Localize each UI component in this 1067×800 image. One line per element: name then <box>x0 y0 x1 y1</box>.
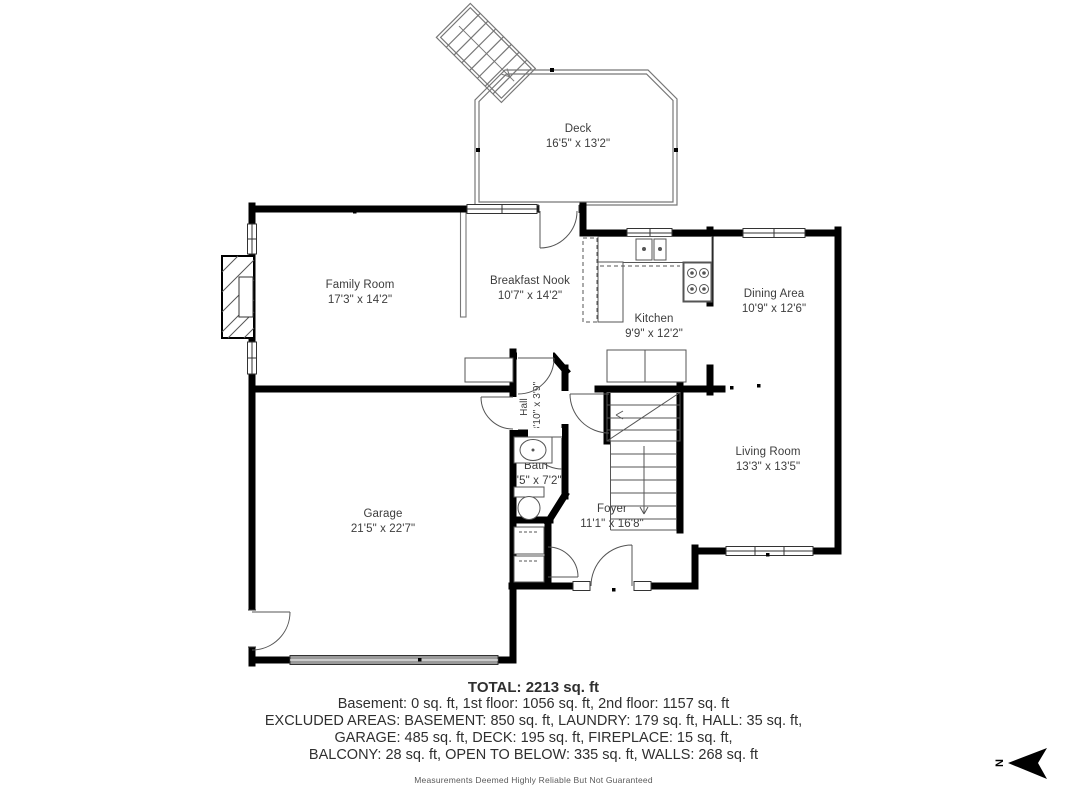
room-dims: 21'5" x 22'7" <box>351 522 415 537</box>
area-summary: TOTAL: 2213 sq. ft Basement: 0 sq. ft, 1… <box>0 679 1067 764</box>
room-label-bath: Bath 4'5" x 7'2" <box>510 459 561 489</box>
room-label-garage: Garage 21'5" x 22'7" <box>351 507 415 537</box>
room-name: Deck <box>546 122 610 137</box>
room-name: Kitchen <box>625 312 683 327</box>
room-label-kitchen: Kitchen 9'9" x 12'2" <box>625 312 683 342</box>
room-dims: 4'5" x 7'2" <box>510 474 561 489</box>
floor-areas-text: Basement: 0 sq. ft, 1st floor: 1056 sq. … <box>0 696 1067 713</box>
room-label-breakfast-nook: Breakfast Nook 10'7" x 14'2" <box>490 274 570 304</box>
floor-plan-page: Deck 16'5" x 13'2" Family Room 17'3" x 1… <box>0 0 1067 800</box>
room-label-foyer: Foyer 11'1" x 16'8" <box>580 502 644 532</box>
room-dims: 3'10" x 3'9" <box>531 382 544 432</box>
disclaimer-text: Measurements Deemed Highly Reliable But … <box>0 775 1067 785</box>
room-dims: 11'1" x 16'8" <box>580 517 644 532</box>
room-name: Family Room <box>326 278 395 293</box>
room-label-family-room: Family Room 17'3" x 14'2" <box>326 278 395 308</box>
room-name: Foyer <box>580 502 644 517</box>
room-dims: 9'9" x 12'2" <box>625 327 683 342</box>
room-name: Living Room <box>735 445 800 460</box>
room-label-dining-area: Dining Area 10'9" x 12'6" <box>742 287 806 317</box>
room-name: Bath <box>510 459 561 474</box>
total-area-text: TOTAL: 2213 sq. ft <box>0 679 1067 696</box>
room-name: Breakfast Nook <box>490 274 570 289</box>
room-dims: 10'9" x 12'6" <box>742 302 806 317</box>
room-label-hall: Hall 3'10" x 3'9" <box>518 382 544 432</box>
room-dims: 13'3" x 13'5" <box>735 460 800 475</box>
room-label-deck: Deck 16'5" x 13'2" <box>546 122 610 152</box>
excluded-areas-3: BALCONY: 28 sq. ft, OPEN TO BELOW: 335 s… <box>0 747 1067 764</box>
room-dims: 16'5" x 13'2" <box>546 137 610 152</box>
room-label-living-room: Living Room 13'3" x 13'5" <box>735 445 800 475</box>
room-name: Garage <box>351 507 415 522</box>
room-dims: 10'7" x 14'2" <box>490 289 570 304</box>
excluded-areas-2: GARAGE: 485 sq. ft, DECK: 195 sq. ft, FI… <box>0 730 1067 747</box>
excluded-areas-1: EXCLUDED AREAS: BASEMENT: 850 sq. ft, LA… <box>0 713 1067 730</box>
room-name: Hall <box>518 382 531 432</box>
room-name: Dining Area <box>742 287 806 302</box>
room-dims: 17'3" x 14'2" <box>326 293 395 308</box>
